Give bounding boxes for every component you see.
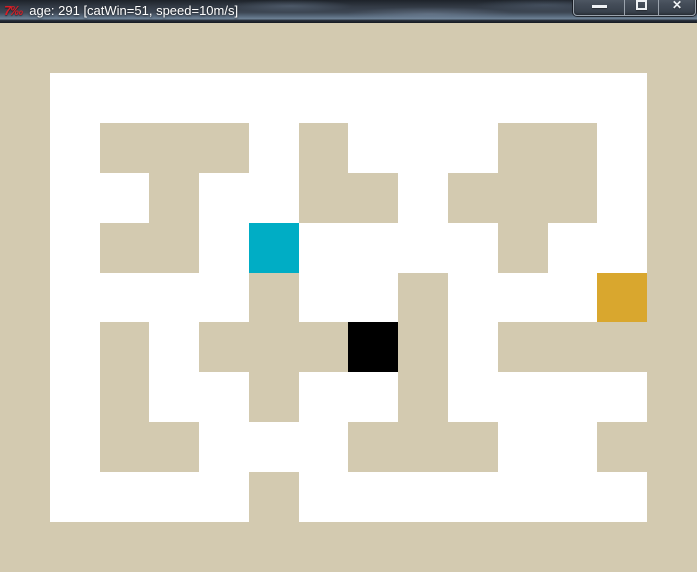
- path-cell: [448, 123, 498, 173]
- wall-cell: [398, 23, 448, 73]
- wall-cell: [100, 223, 150, 273]
- path-cell: [348, 372, 398, 422]
- path-cell: [149, 73, 199, 123]
- wall-cell: [498, 322, 548, 372]
- wall-cell: [398, 422, 448, 472]
- wall-cell: [597, 322, 647, 372]
- path-cell: [50, 73, 100, 123]
- wall-cell: [149, 23, 199, 73]
- path-cell: [299, 73, 349, 123]
- wall-cell: [597, 522, 647, 572]
- wall-cell: [0, 472, 50, 522]
- wall-cell: [149, 522, 199, 572]
- wall-cell: [199, 23, 249, 73]
- path-cell: [498, 422, 548, 472]
- wall-cell: [348, 522, 398, 572]
- wall-cell: [0, 223, 50, 273]
- path-cell: [299, 472, 349, 522]
- wall-cell: [498, 223, 548, 273]
- path-cell: [597, 73, 647, 123]
- titlebar[interactable]: 7‰ age: 291 [catWin=51, speed=10m/s] ✕: [0, 0, 697, 23]
- wall-cell: [0, 273, 50, 323]
- path-cell: [199, 372, 249, 422]
- path-cell: [249, 173, 299, 223]
- wall-cell: [398, 372, 448, 422]
- path-cell: [50, 322, 100, 372]
- wall-cell: [199, 123, 249, 173]
- maze-grid[interactable]: [0, 23, 697, 572]
- wall-cell: [647, 522, 697, 572]
- path-cell: [199, 472, 249, 522]
- window-controls: ✕: [573, 0, 696, 16]
- wall-cell: [100, 372, 150, 422]
- wall-cell: [299, 23, 349, 73]
- wall-cell: [348, 23, 398, 73]
- path-cell: [100, 472, 150, 522]
- path-cell: [498, 472, 548, 522]
- path-cell: [548, 422, 598, 472]
- path-cell: [100, 273, 150, 323]
- wall-cell: [498, 23, 548, 73]
- wall-cell: [647, 73, 697, 123]
- wall-cell: [498, 123, 548, 173]
- wall-cell: [100, 422, 150, 472]
- wall-cell: [0, 422, 50, 472]
- wall-cell: [398, 322, 448, 372]
- wall-cell: [398, 273, 448, 323]
- path-cell: [149, 273, 199, 323]
- path-cell: [199, 223, 249, 273]
- window-title: age: 291 [catWin=51, speed=10m/s]: [29, 3, 238, 18]
- wall-cell: [548, 123, 598, 173]
- wall-cell: [647, 23, 697, 73]
- path-cell: [249, 73, 299, 123]
- wall-cell: [597, 23, 647, 73]
- path-cell: [50, 173, 100, 223]
- path-cell: [50, 472, 100, 522]
- path-cell: [249, 422, 299, 472]
- wall-cell: [348, 422, 398, 472]
- wall-cell: [597, 422, 647, 472]
- wall-cell: [249, 372, 299, 422]
- path-cell: [498, 372, 548, 422]
- path-cell: [548, 372, 598, 422]
- wall-cell: [299, 322, 349, 372]
- path-cell: [398, 173, 448, 223]
- path-cell: [548, 73, 598, 123]
- maximize-icon: [636, 0, 647, 10]
- wall-cell: [647, 123, 697, 173]
- path-cell: [100, 173, 150, 223]
- wall-cell: [647, 472, 697, 522]
- path-cell: [100, 73, 150, 123]
- path-cell: [548, 273, 598, 323]
- game-window: 7‰ age: 291 [catWin=51, speed=10m/s] ✕: [0, 0, 697, 572]
- path-cell: [548, 472, 598, 522]
- path-cell: [597, 173, 647, 223]
- wall-cell: [249, 322, 299, 372]
- wall-cell: [398, 522, 448, 572]
- wall-cell: [100, 123, 150, 173]
- app-icon: 7‰: [4, 3, 22, 18]
- path-cell: [299, 223, 349, 273]
- wall-cell: [249, 23, 299, 73]
- wall-cell: [199, 522, 249, 572]
- path-cell: [348, 73, 398, 123]
- wall-cell: [100, 322, 150, 372]
- path-cell: [348, 472, 398, 522]
- path-cell: [597, 372, 647, 422]
- wall-cell: [647, 322, 697, 372]
- path-cell: [50, 422, 100, 472]
- path-cell: [348, 123, 398, 173]
- path-cell: [597, 472, 647, 522]
- wall-cell: [498, 522, 548, 572]
- path-cell: [448, 322, 498, 372]
- path-cell: [199, 422, 249, 472]
- wall-cell: [647, 372, 697, 422]
- wall-cell: [149, 123, 199, 173]
- path-cell: [149, 322, 199, 372]
- path-cell: [149, 472, 199, 522]
- wall-cell: [299, 173, 349, 223]
- wall-cell: [0, 322, 50, 372]
- path-cell: [448, 73, 498, 123]
- wall-cell: [50, 23, 100, 73]
- path-cell: [199, 73, 249, 123]
- path-cell: [498, 273, 548, 323]
- wall-cell: [348, 173, 398, 223]
- wall-cell: [50, 522, 100, 572]
- wall-cell: [448, 23, 498, 73]
- wall-cell: [548, 23, 598, 73]
- path-cell: [398, 223, 448, 273]
- wall-cell: [249, 273, 299, 323]
- path-cell: [299, 273, 349, 323]
- wall-cell: [0, 23, 50, 73]
- wall-cell: [647, 173, 697, 223]
- path-cell: [448, 472, 498, 522]
- wall-cell: [100, 522, 150, 572]
- wall-cell: [448, 522, 498, 572]
- wall-cell: [548, 173, 598, 223]
- path-cell: [448, 273, 498, 323]
- path-cell: [548, 223, 598, 273]
- wall-cell: [249, 472, 299, 522]
- path-cell: [448, 223, 498, 273]
- wall-cell: [647, 422, 697, 472]
- wall-cell: [249, 522, 299, 572]
- path-cell: [149, 372, 199, 422]
- path-cell: [299, 372, 349, 422]
- wall-cell: [548, 322, 598, 372]
- path-cell: [249, 123, 299, 173]
- wall-cell: [0, 372, 50, 422]
- wall-cell: [149, 173, 199, 223]
- wall-cell: [448, 173, 498, 223]
- path-cell: [299, 422, 349, 472]
- wall-cell: [299, 522, 349, 572]
- wall-cell: [0, 522, 50, 572]
- wall-cell: [0, 123, 50, 173]
- wall-cell: [299, 123, 349, 173]
- maximize-button[interactable]: [624, 0, 658, 15]
- cyan-agent-cell: [249, 223, 299, 273]
- path-cell: [398, 73, 448, 123]
- close-button[interactable]: ✕: [658, 0, 695, 15]
- wall-cell: [448, 422, 498, 472]
- wall-cell: [647, 223, 697, 273]
- wall-cell: [100, 23, 150, 73]
- wall-cell: [199, 322, 249, 372]
- minimize-button[interactable]: [574, 0, 624, 15]
- black-agent-cell: [348, 322, 398, 372]
- close-icon: ✕: [672, 0, 682, 11]
- path-cell: [50, 372, 100, 422]
- wall-cell: [0, 73, 50, 123]
- path-cell: [597, 223, 647, 273]
- path-cell: [50, 223, 100, 273]
- path-cell: [597, 123, 647, 173]
- wall-cell: [548, 522, 598, 572]
- orange-goal-cell: [597, 273, 647, 323]
- path-cell: [199, 273, 249, 323]
- path-cell: [398, 123, 448, 173]
- path-cell: [50, 123, 100, 173]
- path-cell: [498, 73, 548, 123]
- minimize-icon: [592, 5, 607, 8]
- path-cell: [50, 273, 100, 323]
- path-cell: [348, 223, 398, 273]
- path-cell: [448, 372, 498, 422]
- path-cell: [348, 273, 398, 323]
- path-cell: [199, 173, 249, 223]
- wall-cell: [498, 173, 548, 223]
- wall-cell: [647, 273, 697, 323]
- wall-cell: [149, 223, 199, 273]
- wall-cell: [0, 173, 50, 223]
- path-cell: [398, 472, 448, 522]
- wall-cell: [149, 422, 199, 472]
